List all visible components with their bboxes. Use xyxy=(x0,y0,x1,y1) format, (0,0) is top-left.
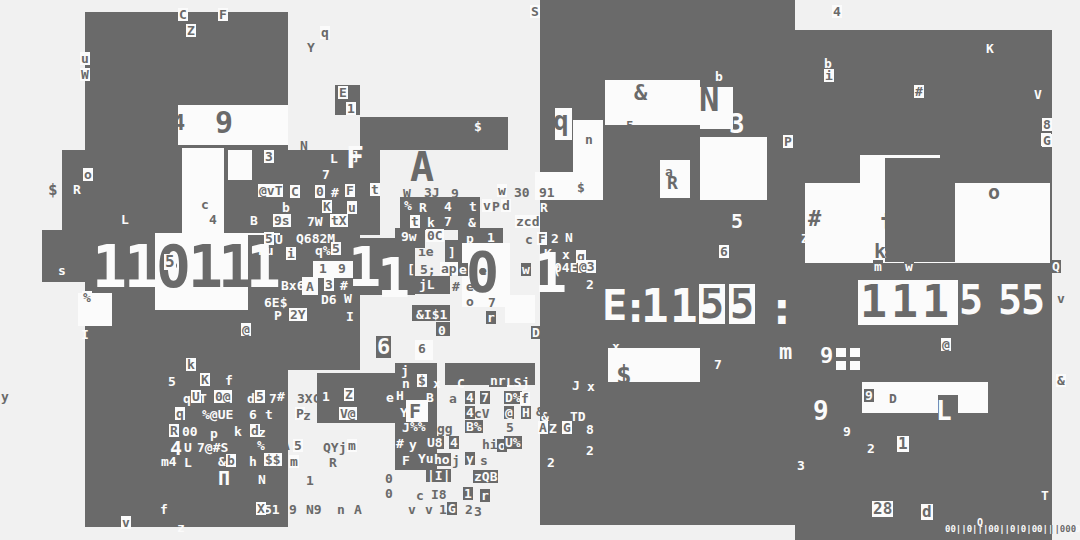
glyph: @ xyxy=(504,406,514,419)
glyph: # xyxy=(808,208,821,230)
glyph: G xyxy=(1042,134,1052,147)
glyph: %% xyxy=(410,420,426,433)
glyph: 9w xyxy=(401,230,417,243)
glyph: f xyxy=(225,374,233,387)
glyph: 3 xyxy=(264,150,274,163)
glyph: D xyxy=(889,392,897,405)
glyph: Yu xyxy=(417,452,435,465)
glyph: 5 xyxy=(255,390,265,403)
glyph: R xyxy=(73,183,81,196)
glyph: 5 xyxy=(699,284,725,324)
glyph: F xyxy=(402,454,410,467)
glyph: I xyxy=(81,328,89,341)
glyph: 2 xyxy=(586,278,594,291)
glyph: 6 xyxy=(249,408,257,421)
glyph: 0C xyxy=(426,229,444,242)
glyph: 5 xyxy=(506,421,514,434)
glyph: c xyxy=(201,198,209,211)
glyph: f xyxy=(520,392,530,405)
glyph: Z xyxy=(549,422,557,435)
glyph: b xyxy=(715,70,723,83)
glyph: 91 xyxy=(539,186,555,199)
glyph: U8 xyxy=(426,436,444,449)
glyph: Z xyxy=(801,232,809,245)
glyph: x xyxy=(587,380,595,393)
glyph: e xyxy=(386,391,394,404)
glyph: o xyxy=(83,168,93,181)
glyph: 5 xyxy=(729,284,755,324)
glyph: B xyxy=(426,391,434,404)
glyph: % xyxy=(82,291,92,304)
glyph: 5 xyxy=(626,119,634,132)
glyph: w xyxy=(904,260,914,273)
glyph: p xyxy=(210,427,218,440)
glyph: L xyxy=(330,152,338,165)
glyph: jL xyxy=(419,278,435,291)
glyph: j xyxy=(452,454,460,467)
glyph: 7 xyxy=(444,215,452,228)
white-block xyxy=(836,348,846,357)
glyph: 9 xyxy=(820,345,833,367)
glyph: Bx6 xyxy=(281,279,304,292)
glyph: nr xyxy=(489,374,507,387)
glyph: q xyxy=(320,26,330,39)
glyph: I8 xyxy=(431,488,447,501)
glyph: 9 xyxy=(813,398,829,424)
glyph: 7 xyxy=(269,392,277,405)
glyph: 4 xyxy=(832,5,842,18)
glyph: hi xyxy=(482,438,498,451)
glyph: 3J xyxy=(424,186,440,199)
glyph: zQB xyxy=(473,470,498,483)
glyph: v xyxy=(408,503,416,516)
glyph: t xyxy=(469,200,477,213)
glyph: r xyxy=(480,489,490,502)
glyph: 0@ xyxy=(214,390,232,403)
glyph: gg xyxy=(437,422,453,435)
glyph: 9 xyxy=(451,187,459,200)
glyph: N xyxy=(258,473,266,486)
glyph: 4 xyxy=(444,200,452,213)
glyph: 1 xyxy=(322,390,330,403)
glyph: 6 xyxy=(376,336,391,358)
glyph: W xyxy=(80,68,90,81)
glyph: n xyxy=(337,503,345,516)
glyph: $ xyxy=(616,362,632,388)
glyph: N9 xyxy=(306,503,322,516)
glyph: 1 xyxy=(860,279,887,324)
glyph: A xyxy=(354,503,362,516)
glyph: D6 xyxy=(321,293,337,306)
glyph: V@ xyxy=(339,407,357,420)
glyph: & xyxy=(536,405,544,418)
glyph: s xyxy=(58,264,66,277)
glyph: r xyxy=(486,311,496,324)
glyph: % xyxy=(404,199,412,212)
white-block xyxy=(228,150,252,180)
glyph: 5 xyxy=(1020,280,1046,320)
glyph: 5 xyxy=(164,254,176,270)
glyph: %@UE xyxy=(202,408,233,421)
glyph: % xyxy=(257,439,265,452)
glyph: i xyxy=(286,247,296,260)
glyph: T xyxy=(199,392,207,405)
glyph: # xyxy=(340,279,348,292)
glyph: R xyxy=(329,456,337,469)
glyph: 4 xyxy=(449,436,459,449)
glyph: 9 xyxy=(215,108,233,138)
glyph: 1 xyxy=(670,283,698,329)
glyph: u xyxy=(347,201,357,214)
glyph: @ xyxy=(941,338,951,351)
glyph: $$ xyxy=(264,453,282,466)
glyph: 0 xyxy=(385,487,393,500)
glyph: 1 xyxy=(377,251,410,306)
glyph: N xyxy=(300,139,308,152)
glyph: & xyxy=(634,82,647,104)
glyph: c xyxy=(525,233,533,246)
glyph: A xyxy=(282,439,290,452)
glyph: D% xyxy=(504,391,522,404)
glyph: zcd xyxy=(515,215,540,228)
glyph: P xyxy=(492,200,500,213)
glyph: 1 xyxy=(124,238,159,296)
glyph: 3 xyxy=(474,505,482,518)
glyph: QYj xyxy=(323,441,346,454)
glyph: 7W xyxy=(307,215,323,228)
glyph: k xyxy=(874,241,886,261)
glyph: Z xyxy=(344,388,354,401)
glyph: a xyxy=(449,392,457,405)
glyph: u xyxy=(80,52,90,65)
glyph: 4 xyxy=(172,112,185,134)
glyph: 8 xyxy=(1042,118,1052,131)
glyph: $ xyxy=(577,181,585,194)
white-block xyxy=(700,137,767,200)
glyph: A xyxy=(306,280,314,293)
glyph: # xyxy=(452,280,460,293)
glyph: z xyxy=(303,409,311,422)
glyph: G xyxy=(562,421,572,434)
glyph: R xyxy=(419,201,427,214)
glyph: 30 xyxy=(514,186,530,199)
glyph: h xyxy=(249,455,257,468)
glyph: & xyxy=(468,216,476,229)
white-block xyxy=(182,148,224,233)
glyph: 3 xyxy=(324,278,334,291)
glyph: V xyxy=(1034,88,1042,101)
glyph: w xyxy=(521,263,531,276)
glyph: 1 xyxy=(534,246,567,301)
glyph: 9 xyxy=(864,389,874,402)
glyph: 3XC xyxy=(297,392,320,405)
glyph: t xyxy=(370,183,380,196)
glyph: 2Y xyxy=(289,308,307,321)
glyph: f xyxy=(160,503,168,516)
glyph: C xyxy=(290,185,300,198)
glyph: U xyxy=(184,441,192,454)
glyph: G xyxy=(447,502,457,515)
glyph: 1 xyxy=(922,279,949,324)
white-block xyxy=(850,348,860,357)
glyph: $ xyxy=(474,120,482,133)
glyph: C xyxy=(457,377,465,390)
glyph: 1 xyxy=(319,262,327,275)
glyph: L xyxy=(184,456,192,469)
glyph: P xyxy=(274,309,282,322)
glyph: i xyxy=(824,69,834,82)
white-block xyxy=(505,295,535,323)
glyph: 6 xyxy=(719,245,729,258)
glyph: 7 xyxy=(322,168,330,181)
glyph: ] xyxy=(448,246,456,259)
glyph: R xyxy=(540,201,548,214)
glyph: 9 xyxy=(338,262,346,275)
glyph: m xyxy=(289,455,299,468)
glyph: 3 xyxy=(729,111,745,137)
glyph: 7 xyxy=(480,391,490,404)
glyph: 7 xyxy=(714,358,722,371)
glyph: LSj xyxy=(506,376,529,389)
glyph: &I$1 xyxy=(416,308,447,321)
glyph: R xyxy=(667,174,678,192)
glyph: d xyxy=(247,392,255,405)
glyph: v xyxy=(121,516,131,529)
glyph: F xyxy=(218,8,228,21)
glyph: S xyxy=(530,5,540,18)
glyph: 1 xyxy=(891,279,918,324)
glyph: L xyxy=(121,213,129,226)
glyph: N̈ xyxy=(699,82,719,116)
glyph: w xyxy=(497,184,507,197)
glyph: L xyxy=(936,398,952,424)
glyph: Q xyxy=(1051,260,1061,273)
glyph: y xyxy=(465,452,475,465)
white-block xyxy=(836,361,846,370)
glyph: 4 xyxy=(465,391,475,404)
glyph: T xyxy=(1041,489,1049,502)
glyph: m4 xyxy=(161,455,177,468)
glyph: 5 xyxy=(958,280,984,320)
glyph: n xyxy=(584,133,594,146)
glyph: ho xyxy=(433,453,451,466)
glyph: K xyxy=(322,200,332,213)
glyph: 6 xyxy=(418,342,426,355)
gray-block xyxy=(360,117,508,150)
glyph: 1 xyxy=(463,487,473,500)
glyph: t xyxy=(265,408,273,421)
glyph: m xyxy=(779,341,792,363)
glyph: d xyxy=(921,504,933,520)
glyph: 4 xyxy=(209,213,217,226)
glyph: k xyxy=(234,425,242,438)
glyph: 5; xyxy=(420,263,436,276)
glyph: # xyxy=(331,186,339,199)
glyph: 2 xyxy=(867,442,875,455)
glyph: q xyxy=(183,392,191,405)
glyph: & xyxy=(1056,374,1066,387)
gray-block xyxy=(62,150,85,280)
glyph: P xyxy=(783,135,793,148)
glyph: 28 xyxy=(872,501,893,517)
glyph: # xyxy=(396,437,404,450)
glyph: 2 xyxy=(586,444,594,457)
glyph: 00 xyxy=(182,425,198,438)
glyph: t xyxy=(410,215,420,228)
glyph: m xyxy=(347,439,357,452)
white-block xyxy=(862,382,988,413)
glyph: $ xyxy=(48,182,58,198)
glyph: y xyxy=(409,438,417,451)
glyph: 2 xyxy=(547,456,555,469)
glyph: 9 xyxy=(843,425,851,438)
glyph: tX xyxy=(330,214,348,227)
glyph: J xyxy=(572,379,580,392)
glyph: K xyxy=(200,373,210,386)
glyph: $ xyxy=(417,374,427,387)
glyph: 1 xyxy=(246,238,281,296)
glyph: 5 xyxy=(293,439,303,452)
glyph: B% xyxy=(465,420,483,433)
glyph: D xyxy=(531,326,541,339)
glyph: 1 xyxy=(897,436,909,452)
glyph: Z xyxy=(186,24,196,37)
glyph: z xyxy=(177,521,185,534)
glyph: 2 xyxy=(465,503,473,516)
glyph: 1 xyxy=(641,283,669,329)
glyph: # xyxy=(277,390,285,403)
glyph: v xyxy=(482,199,492,212)
glyph: v xyxy=(1057,292,1065,305)
glyph: 0 xyxy=(315,185,325,198)
glyph: 1 xyxy=(439,503,447,516)
glyph: @ xyxy=(241,323,251,336)
glyph: 3 xyxy=(797,459,805,472)
glyph: U% xyxy=(504,436,522,449)
glyph: Y xyxy=(307,41,315,54)
glyph: F xyxy=(345,184,355,197)
glyph: 0 xyxy=(385,472,393,485)
glyph: |I| xyxy=(426,469,451,482)
glyph: 1 xyxy=(306,474,314,487)
glitch-noise-screen: CFZqYuWE1NL]7493o$Rc4LBFA$S@vTC0#FtW3J9w… xyxy=(0,0,1080,540)
glyph: x xyxy=(433,377,441,390)
glyph: q% xyxy=(315,244,331,257)
glyph: E xyxy=(338,86,348,99)
glyph: n xyxy=(402,377,410,390)
white-block xyxy=(605,80,700,125)
glyph: C xyxy=(178,8,188,21)
glyph: K xyxy=(986,42,994,55)
glyph: TD xyxy=(570,410,586,423)
glyph: A xyxy=(410,147,434,187)
glyph: 5 xyxy=(168,375,176,388)
glyph: c xyxy=(416,489,424,502)
glyph: F xyxy=(409,401,421,421)
glyph: y xyxy=(1,390,9,403)
glyph: o xyxy=(988,182,1000,202)
glyph: 1 xyxy=(92,238,127,296)
glyph: v xyxy=(425,503,433,516)
glyph: Y xyxy=(400,406,408,419)
glyph: Π xyxy=(218,468,230,488)
glyph: ap xyxy=(440,262,458,275)
glyph: x xyxy=(612,340,620,353)
glyph: J xyxy=(402,421,410,434)
white-block xyxy=(850,361,860,370)
glyph: A xyxy=(538,421,548,434)
glyph: q xyxy=(175,407,185,420)
glyph: # xyxy=(914,85,924,98)
glyph: s xyxy=(480,454,488,467)
glyph: 5 xyxy=(731,211,743,231)
glyph: @3 xyxy=(578,260,596,273)
glyph: ie xyxy=(418,245,434,258)
glyph: B xyxy=(250,214,258,227)
glyph: 1 xyxy=(346,102,356,115)
glyph: 0 xyxy=(466,245,499,300)
glyph: @vT xyxy=(258,184,283,197)
glyph: d xyxy=(501,199,511,212)
glyph: q xyxy=(553,108,569,134)
glyph: F xyxy=(346,143,364,173)
glyph: k xyxy=(186,358,196,371)
glyph: 8 xyxy=(586,423,594,436)
glyph: 9 xyxy=(289,503,297,516)
glyph: 9s xyxy=(273,214,291,227)
glyph: 51 xyxy=(264,503,280,516)
glyph: 7@#S xyxy=(197,441,228,454)
glyph: ||000 xyxy=(1049,525,1076,534)
glyph: I xyxy=(346,310,354,323)
glyph: 0 xyxy=(438,324,446,337)
glyph: : xyxy=(768,285,796,331)
glyph: 5 xyxy=(331,242,341,255)
glyph: H xyxy=(521,406,531,419)
glyph: t xyxy=(880,210,896,236)
